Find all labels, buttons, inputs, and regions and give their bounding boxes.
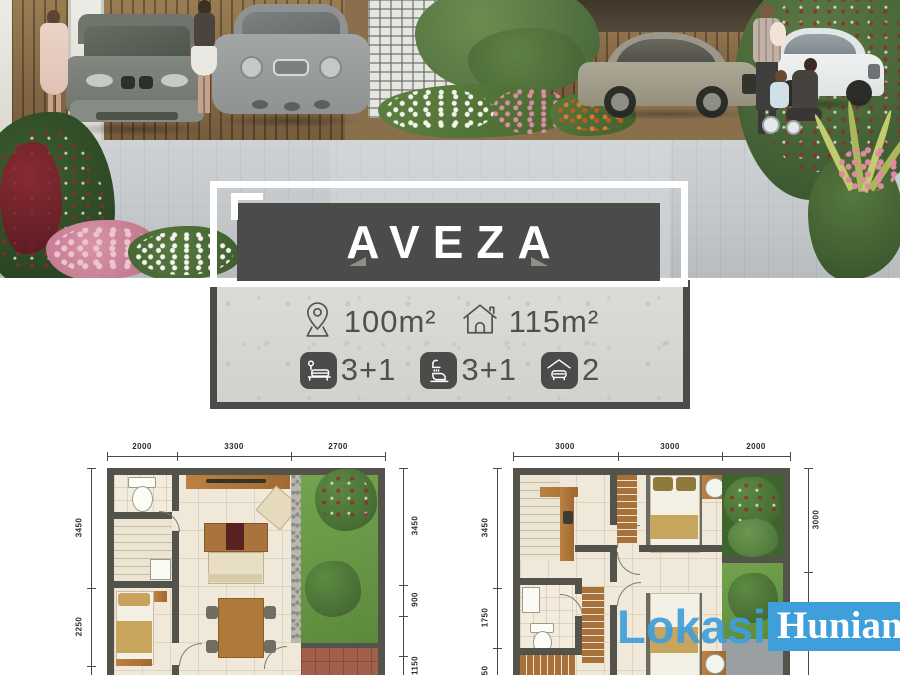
toilet-bowl xyxy=(132,486,153,512)
car-grille xyxy=(121,76,135,89)
dim-label: 2250 xyxy=(75,607,84,647)
spiky-plant-right xyxy=(808,100,900,278)
pink-flowers-right xyxy=(838,146,898,192)
wall xyxy=(610,605,617,675)
dim-label: 3000 xyxy=(812,500,821,540)
brochure-page: AVEZA 100m² 115m² xyxy=(0,0,900,675)
dim-label: 3450 xyxy=(75,508,84,548)
television xyxy=(206,479,266,483)
car-audi xyxy=(578,32,760,120)
bathrooms-value: 3+1 xyxy=(461,352,517,388)
wardrobe xyxy=(582,587,604,663)
garden-bush xyxy=(728,519,778,557)
sofa-back xyxy=(208,574,262,582)
land-area-value: 100m² xyxy=(344,304,437,340)
facility-row: 3+1 3+1 xyxy=(217,352,683,389)
dim-tick xyxy=(790,452,791,461)
wall xyxy=(575,578,582,594)
dim-tick xyxy=(291,452,292,461)
dim-label: 3000 xyxy=(645,442,695,451)
dim-label: 1750 xyxy=(481,598,490,638)
person-woman-white-skirt xyxy=(186,0,222,120)
wall xyxy=(575,545,617,552)
wall xyxy=(639,545,722,552)
car-headlight xyxy=(319,56,342,79)
dim-tick xyxy=(804,468,813,469)
car-foglight xyxy=(252,100,268,109)
bed-icon xyxy=(300,352,337,389)
wall xyxy=(610,475,617,525)
dining-chair xyxy=(206,606,218,619)
title-banner: AVEZA xyxy=(237,203,660,281)
door-arc xyxy=(560,594,583,617)
dim-label: 3450 xyxy=(411,506,420,546)
plan1-right-dim-line xyxy=(403,468,404,675)
tricycle-wheel xyxy=(786,120,801,135)
bush-flowers xyxy=(320,475,372,525)
bathroom-item: 3+1 xyxy=(420,352,517,389)
washbasin xyxy=(150,559,171,580)
watermark-word-2: Hunian xyxy=(768,602,900,651)
dim-label: 2700 xyxy=(313,442,363,451)
dim-tick xyxy=(399,468,408,469)
watermark-word-1: Lokasi xyxy=(617,599,766,654)
sink xyxy=(522,587,540,613)
map-pin-icon xyxy=(301,301,334,343)
wall xyxy=(172,665,179,675)
nightstand xyxy=(154,591,167,602)
dim-label: 3000 xyxy=(540,442,590,451)
dim-label: 3300 xyxy=(209,442,259,451)
balcony-garden xyxy=(722,475,783,557)
person-head xyxy=(47,10,60,24)
door-arc xyxy=(179,643,202,666)
wall xyxy=(114,581,172,588)
dim-label: 1150 xyxy=(411,646,420,675)
car-grille xyxy=(273,59,309,76)
dim-label: 50 xyxy=(481,651,490,675)
dim-tick xyxy=(399,616,408,617)
car-headlight xyxy=(86,74,113,87)
bed-footboard xyxy=(116,659,152,666)
specs-card: 100m² 115m² xyxy=(210,280,690,409)
terrace xyxy=(301,648,378,675)
baby xyxy=(770,22,786,46)
watermark: LokasiHunian xyxy=(617,599,900,654)
dim-tick xyxy=(493,468,502,469)
dim-tick xyxy=(87,666,96,667)
car-headlight xyxy=(240,56,263,79)
garden-bush xyxy=(315,469,377,531)
wall xyxy=(172,531,179,643)
car-foglight xyxy=(284,102,300,111)
person-leg xyxy=(205,75,210,113)
wall xyxy=(575,616,582,648)
car-intake xyxy=(96,112,178,120)
bed-pillow xyxy=(676,477,696,491)
person-boy-on-tricycle xyxy=(758,70,804,140)
bedroom-item: 3+1 xyxy=(300,352,397,389)
dining-chair xyxy=(264,606,276,619)
door-arc xyxy=(617,552,640,575)
wardrobe-bottom xyxy=(520,655,575,675)
dim-tick xyxy=(399,585,408,586)
carport-value: 2 xyxy=(582,352,600,388)
flower-bed-center xyxy=(378,84,574,138)
tricycle-wheel xyxy=(762,116,780,134)
garden xyxy=(301,475,378,643)
car-grille xyxy=(868,64,880,79)
dining-table xyxy=(218,598,264,658)
car-foglight xyxy=(314,100,330,109)
person-shirt xyxy=(770,82,789,108)
dim-tick xyxy=(87,588,96,589)
dim-label: 2000 xyxy=(117,442,167,451)
bed-pillow xyxy=(653,477,673,491)
laptop xyxy=(563,511,573,524)
dim-tick xyxy=(399,656,408,657)
dim-tick xyxy=(493,588,502,589)
dim-tick xyxy=(107,452,108,461)
desk-side xyxy=(560,487,574,561)
bed-blanket xyxy=(116,621,152,653)
car-headlight xyxy=(161,74,188,87)
plan1-left-dim-line xyxy=(91,468,92,675)
wall xyxy=(520,648,582,655)
shower-icon xyxy=(420,352,457,389)
garden-bush xyxy=(305,561,361,617)
plan2-top-dim-line xyxy=(513,456,790,457)
person-skirt xyxy=(191,46,217,76)
area-row: 100m² 115m² xyxy=(217,301,683,343)
wall xyxy=(520,578,582,585)
car-shadow xyxy=(216,114,366,128)
table-runner xyxy=(226,523,244,550)
house-icon xyxy=(461,302,499,341)
plan1-top-dim-line xyxy=(107,456,385,457)
car-nissan-juke xyxy=(212,4,370,126)
bracket-bar xyxy=(231,193,238,220)
dim-tick xyxy=(722,452,723,461)
bed-blanket xyxy=(650,515,698,539)
corner-bracket xyxy=(231,193,263,220)
dim-label: 900 xyxy=(411,580,420,620)
wall xyxy=(610,552,617,582)
person-dress xyxy=(40,23,68,95)
white-flowers xyxy=(386,89,494,132)
dim-tick xyxy=(87,468,96,469)
gravel-strip xyxy=(291,475,301,643)
dim-tick xyxy=(385,452,386,461)
car-grille xyxy=(139,76,153,89)
table-lamp xyxy=(705,654,725,674)
dining-chair xyxy=(206,640,218,653)
dim-tick xyxy=(804,572,813,573)
dim-label: 3450 xyxy=(481,508,490,548)
bed-pillow xyxy=(118,593,150,606)
wardrobe xyxy=(617,475,637,543)
dim-tick xyxy=(493,648,502,649)
floorplan-ground xyxy=(107,468,385,675)
dim-label: 2000 xyxy=(731,442,781,451)
person-head xyxy=(760,4,774,19)
plan2-left-dim-line xyxy=(497,468,498,675)
dim-tick xyxy=(618,452,619,461)
person-head xyxy=(198,0,211,14)
building-area-value: 115m² xyxy=(509,304,600,340)
bush-flowers xyxy=(728,482,775,524)
garage-item: 2 xyxy=(541,352,600,389)
dim-tick xyxy=(513,452,514,461)
car-shadow xyxy=(580,108,758,120)
wall xyxy=(172,475,179,511)
person-top xyxy=(194,13,215,48)
door-arc xyxy=(159,511,180,532)
car-garage-icon xyxy=(541,352,578,389)
bedrooms-value: 3+1 xyxy=(341,352,397,388)
dim-tick xyxy=(177,452,178,461)
person-leg xyxy=(198,75,203,113)
